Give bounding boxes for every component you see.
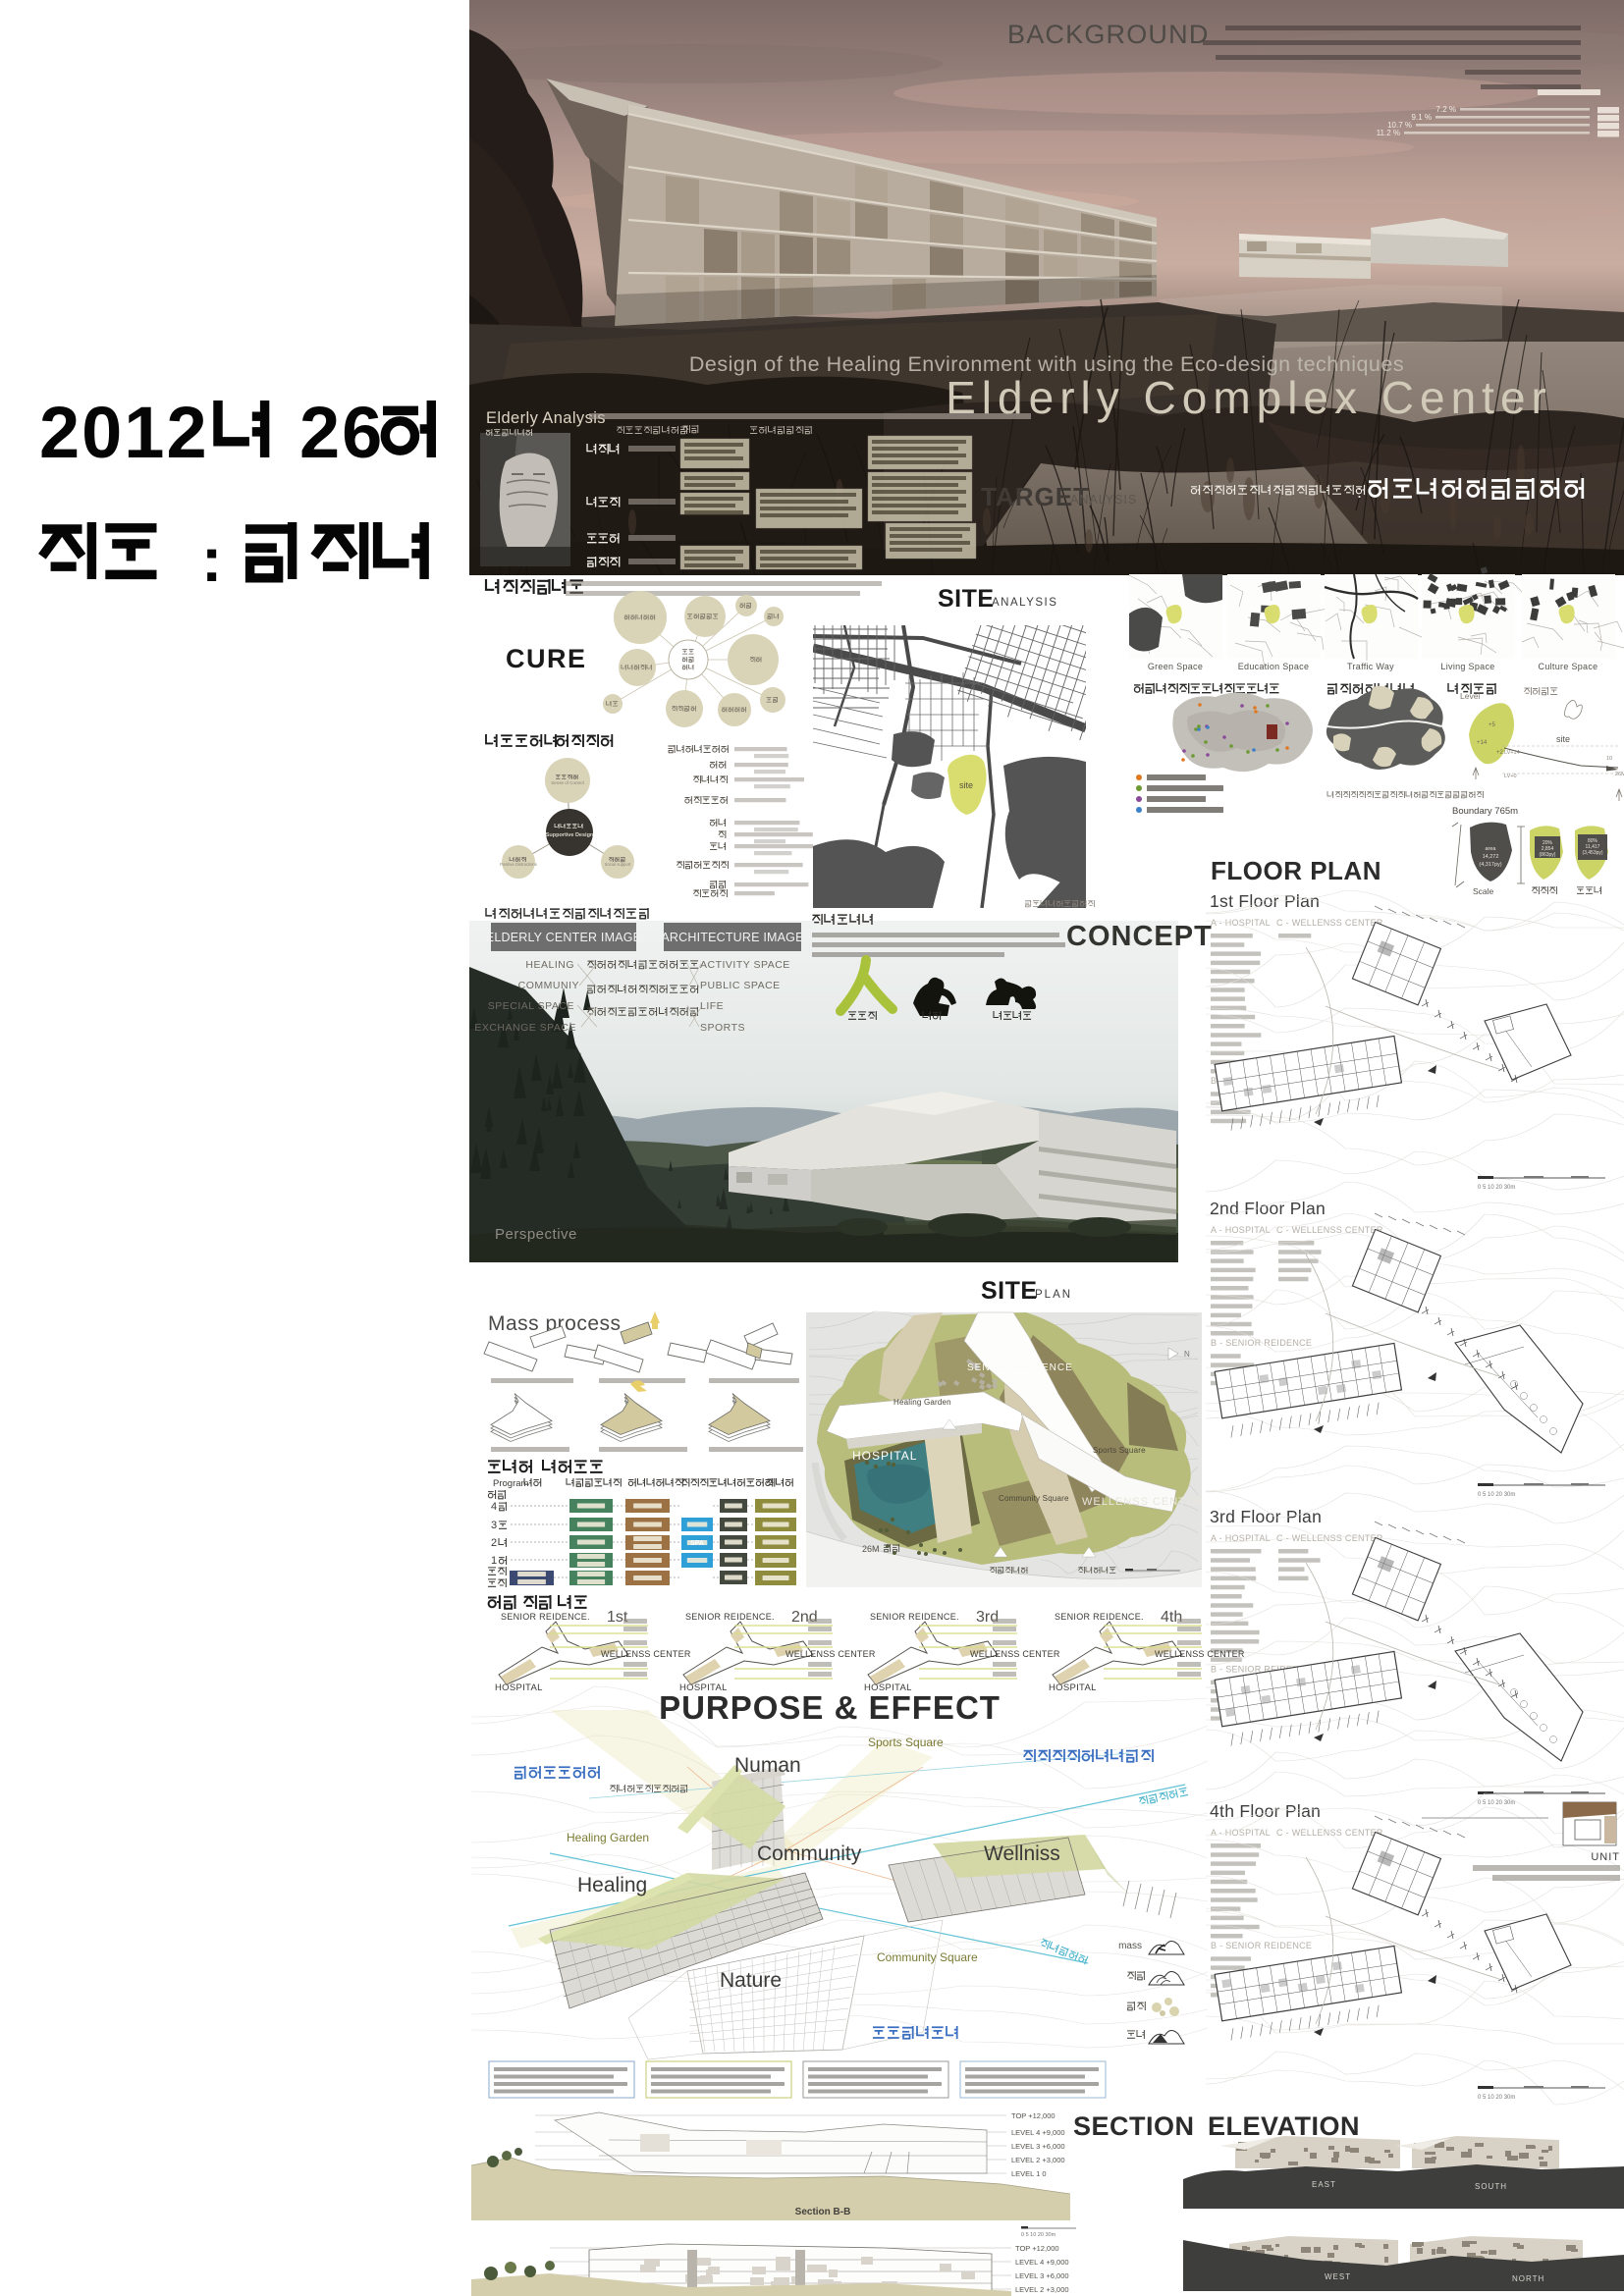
svg-text:26: 26 <box>299 392 384 473</box>
svg-text:+5: +5 <box>1489 722 1496 728</box>
svg-text:HOSPITAL: HOSPITAL <box>1049 1682 1097 1693</box>
svg-text:3rd Floor Plan: 3rd Floor Plan <box>1210 1507 1322 1526</box>
svg-text:C - WELLENSS CENTER: C - WELLENSS CENTER <box>1276 1225 1383 1235</box>
svg-text:Sense of Control: Sense of Control <box>551 780 584 785</box>
svg-text:(4,317py): (4,317py) <box>1479 862 1501 868</box>
svg-text:LEVEL 4 +9,000: LEVEL 4 +9,000 <box>1011 2128 1065 2137</box>
svg-text:Elderly Analysis: Elderly Analysis <box>486 409 606 427</box>
svg-text:LEVEL 4 +9,000: LEVEL 4 +9,000 <box>1015 2258 1069 2267</box>
svg-text:C - WELLENSS CENTER: C - WELLENSS CENTER <box>1276 918 1383 928</box>
svg-text:+2: +2 <box>1496 750 1504 756</box>
svg-text:Nature: Nature <box>720 1969 782 1992</box>
svg-text:CONCEPT: CONCEPT <box>1066 921 1213 952</box>
svg-text:EAST: EAST <box>1312 2180 1336 2189</box>
svg-text:Culture Space: Culture Space <box>1539 662 1598 671</box>
svg-text:A - HOSPITAL: A - HOSPITAL <box>1211 1225 1271 1235</box>
svg-text:SITE: SITE <box>938 585 995 613</box>
svg-text:Healing Garden: Healing Garden <box>893 1398 951 1407</box>
svg-text:Sports Square: Sports Square <box>868 1735 944 1749</box>
svg-text:Sports Square: Sports Square <box>1093 1446 1146 1455</box>
svg-text:SENIOR REIDENCE.: SENIOR REIDENCE. <box>1055 1612 1144 1622</box>
svg-text:ACTIVITY SPACE: ACTIVITY SPACE <box>700 959 790 971</box>
svg-text:LEVEL 3 +6,000: LEVEL 3 +6,000 <box>1011 2142 1065 2151</box>
svg-text:LV+0: LV+0 <box>1504 774 1517 779</box>
svg-text:UNIT: UNIT <box>1591 1851 1620 1863</box>
svg-text:COMMUNIY: COMMUNIY <box>518 980 579 991</box>
svg-text:Traffic Way: Traffic Way <box>1347 662 1394 671</box>
svg-text:Supportive Design: Supportive Design <box>546 832 594 838</box>
svg-text:ELDERLY CENTER IMAGE: ELDERLY CENTER IMAGE <box>486 931 641 944</box>
svg-text:11.2 %: 11.2 % <box>1377 129 1400 137</box>
svg-text:7.2 %: 7.2 % <box>1436 105 1456 114</box>
svg-text:4th Floor Plan: 4th Floor Plan <box>1210 1801 1321 1821</box>
svg-text:0 5 10 20: 0 5 10 20 30m <box>1478 1185 1515 1191</box>
svg-text:0 5 10 20: 0 5 10 20 30m <box>1478 1800 1515 1806</box>
svg-text:SENIOR REIDENCE.: SENIOR REIDENCE. <box>685 1612 775 1622</box>
svg-text:0 5 10 20 30m: 0 5 10 20 30m <box>1021 2232 1056 2238</box>
svg-text:LIFE: LIFE <box>700 1000 724 1012</box>
svg-text:TOP +12,000: TOP +12,000 <box>1015 2244 1059 2253</box>
svg-text:C - WELLENSS CENTER: C - WELLENSS CENTER <box>1276 1533 1383 1543</box>
svg-text:ARCHITECTURE IMAGE: ARCHITECTURE IMAGE <box>661 931 803 944</box>
svg-text:9.1 %: 9.1 % <box>1412 113 1432 122</box>
svg-text::: : <box>201 524 222 595</box>
svg-text:4: 4 <box>491 1501 497 1513</box>
svg-text:WELLENSS CENTER: WELLENSS CENTER <box>601 1649 691 1659</box>
svg-text:TOP +12,000: TOP +12,000 <box>1011 2111 1056 2120</box>
svg-text:ANALYSIS: ANALYSIS <box>1070 493 1137 507</box>
svg-text:Section B-B: Section B-B <box>795 2207 851 2217</box>
svg-text:Numan: Numan <box>734 1754 801 1777</box>
svg-text:SITE: SITE <box>981 1277 1038 1305</box>
svg-text:NORTH: NORTH <box>1512 2274 1544 2283</box>
svg-text:Education Space: Education Space <box>1238 662 1310 671</box>
svg-text:Scale: Scale <box>1473 886 1494 896</box>
svg-text:WELLENSS CENTER: WELLENSS CENTER <box>970 1649 1060 1659</box>
svg-text:PUBLIC SPACE: PUBLIC SPACE <box>700 980 781 991</box>
svg-text:Healing: Healing <box>577 1874 647 1896</box>
svg-text:2012: 2012 <box>39 392 209 473</box>
svg-text:BACKGROUND: BACKGROUND <box>1007 20 1210 49</box>
svg-text:B - SENIOR REIDENCE: B - SENIOR REIDENCE <box>1211 1941 1312 1950</box>
svg-text:area: area <box>1485 846 1496 852</box>
svg-text:Program: Program <box>493 1478 529 1489</box>
svg-text:Healing Garden: Healing Garden <box>567 1831 649 1844</box>
svg-text:(863py): (863py) <box>1540 852 1556 858</box>
svg-text:SECTION: SECTION <box>1073 2111 1195 2141</box>
svg-text:WEST: WEST <box>1325 2272 1351 2281</box>
svg-text:HOSPITAL: HOSPITAL <box>495 1682 543 1693</box>
svg-text:LV+14: LV+14 <box>1504 750 1520 756</box>
svg-text:WELLENSS CENTER: WELLENSS CENTER <box>1155 1649 1245 1659</box>
svg-text:LEVEL 3 +6,000: LEVEL 3 +6,000 <box>1015 2271 1069 2280</box>
svg-text:2: 2 <box>491 1537 497 1549</box>
svg-text:Wellniss: Wellniss <box>984 1842 1060 1865</box>
svg-text:Elderly Complex Center: Elderly Complex Center <box>946 372 1552 423</box>
svg-text:SENIOR REIDENCE.: SENIOR REIDENCE. <box>870 1612 959 1622</box>
svg-text:WELLENSS CENTER: WELLENSS CENTER <box>1082 1496 1203 1508</box>
svg-text:SPORTS: SPORTS <box>700 1022 745 1034</box>
svg-text:Positive Distractions: Positive Distractions <box>500 862 537 867</box>
svg-text:site: site <box>959 780 973 790</box>
svg-text:1st Floor Plan: 1st Floor Plan <box>1210 891 1320 911</box>
svg-text:Green Space: Green Space <box>1148 662 1203 671</box>
svg-text:N: N <box>1184 1350 1190 1359</box>
svg-text:Community: Community <box>757 1842 862 1865</box>
svg-text:3: 3 <box>491 1520 497 1531</box>
svg-text:HOSPITAL: HOSPITAL <box>852 1449 917 1463</box>
svg-text:10: 10 <box>1606 756 1612 762</box>
svg-text:2nd Floor Plan: 2nd Floor Plan <box>1210 1199 1326 1218</box>
svg-text:0 5 10 20: 0 5 10 20 30m <box>1478 1492 1515 1498</box>
svg-text:Community Square: Community Square <box>877 1950 978 1964</box>
svg-text:LEVEL 1 0: LEVEL 1 0 <box>1011 2169 1047 2178</box>
svg-text:+14: +14 <box>1477 740 1488 746</box>
svg-text:SENIOR REIDENCE.: SENIOR REIDENCE. <box>501 1612 590 1622</box>
svg-text:0 5 10 20: 0 5 10 20 30m <box>1478 2095 1515 2101</box>
svg-text:LEVEL 2 +3,000: LEVEL 2 +3,000 <box>1011 2156 1065 2164</box>
svg-text:26M: 26M <box>1615 772 1624 777</box>
svg-text:A - HOSPITAL: A - HOSPITAL <box>1211 1828 1271 1838</box>
svg-text:WELLENSS CENTER: WELLENSS CENTER <box>785 1649 876 1659</box>
svg-text:mass: mass <box>1118 1941 1142 1951</box>
svg-text:(3,453py): (3,453py) <box>1582 850 1602 856</box>
svg-text:Community Square: Community Square <box>999 1494 1069 1503</box>
svg-text:Level: Level <box>1460 691 1480 701</box>
svg-text:26M: 26M <box>862 1544 880 1554</box>
svg-text:EXCHANGE SPACE: EXCHANGE SPACE <box>474 1022 576 1034</box>
svg-text:1: 1 <box>491 1555 497 1567</box>
svg-text::: : <box>1357 482 1362 502</box>
svg-text:Living Space: Living Space <box>1440 662 1494 671</box>
svg-text:Social support: Social support <box>605 862 631 867</box>
svg-text:FLOOR PLAN: FLOOR PLAN <box>1211 856 1381 885</box>
svg-text:SENIOR REIDENCE: SENIOR REIDENCE <box>967 1362 1073 1373</box>
svg-text:SOUTH: SOUTH <box>1475 2182 1507 2191</box>
svg-text:ANALYSIS: ANALYSIS <box>992 597 1057 609</box>
svg-text:PLAN: PLAN <box>1035 1289 1072 1301</box>
svg-text:Boundary 765m: Boundary 765m <box>1452 806 1518 817</box>
svg-text:HEALING: HEALING <box>525 959 574 971</box>
svg-text:A - HOSPITAL: A - HOSPITAL <box>1211 918 1271 928</box>
svg-text:CURE: CURE <box>506 644 587 673</box>
svg-text:SPA: SPA <box>690 1540 704 1547</box>
svg-text:LEVEL 2 +3,000: LEVEL 2 +3,000 <box>1015 2285 1069 2294</box>
svg-text:14,272: 14,272 <box>1483 854 1499 860</box>
svg-text:SPECIAL SPACE: SPECIAL SPACE <box>488 1000 574 1012</box>
svg-text:B - SENIOR REIDENCE: B - SENIOR REIDENCE <box>1211 1338 1312 1348</box>
svg-text:site: site <box>1556 734 1570 744</box>
svg-text:PURPOSE & EFFECT: PURPOSE & EFFECT <box>659 1689 1001 1726</box>
svg-text:Perspective: Perspective <box>495 1226 577 1243</box>
